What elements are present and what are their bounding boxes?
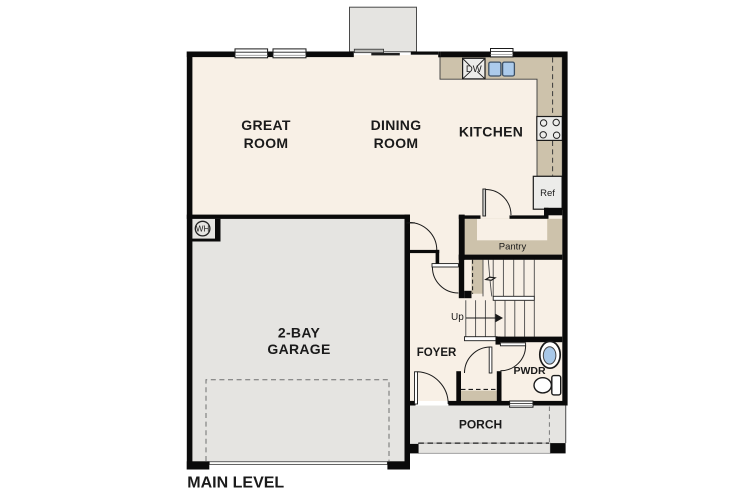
svg-text:DINING: DINING — [371, 117, 422, 133]
svg-text:GREAT: GREAT — [241, 117, 291, 133]
svg-text:FOYER: FOYER — [417, 347, 457, 359]
svg-text:ROOM: ROOM — [244, 135, 289, 151]
svg-text:GARAGE: GARAGE — [267, 341, 330, 357]
svg-text:Pantry: Pantry — [499, 242, 527, 253]
svg-text:DW: DW — [466, 64, 482, 75]
svg-text:WH: WH — [196, 224, 210, 233]
svg-text:2-BAY: 2-BAY — [278, 325, 321, 341]
svg-text:KITCHEN: KITCHEN — [459, 124, 523, 140]
svg-text:ROOM: ROOM — [374, 135, 419, 151]
svg-text:Up: Up — [451, 312, 464, 323]
svg-text:Ref: Ref — [540, 188, 555, 199]
svg-text:MAIN LEVEL: MAIN LEVEL — [187, 475, 284, 492]
svg-text:PORCH: PORCH — [459, 418, 502, 432]
svg-text:PWDR: PWDR — [513, 365, 545, 377]
